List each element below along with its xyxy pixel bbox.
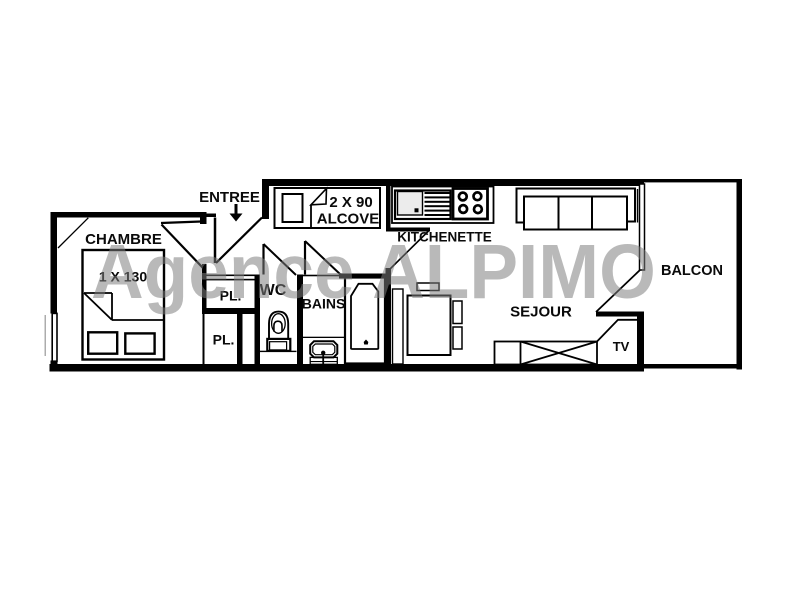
svg-text:TV: TV xyxy=(613,339,630,354)
svg-text:PL.: PL. xyxy=(213,332,235,348)
svg-text:BALCON: BALCON xyxy=(661,263,723,279)
svg-text:ALCOVE: ALCOVE xyxy=(317,211,380,228)
svg-text:ENTREE: ENTREE xyxy=(199,189,260,206)
svg-text:2 X 90: 2 X 90 xyxy=(329,194,372,211)
